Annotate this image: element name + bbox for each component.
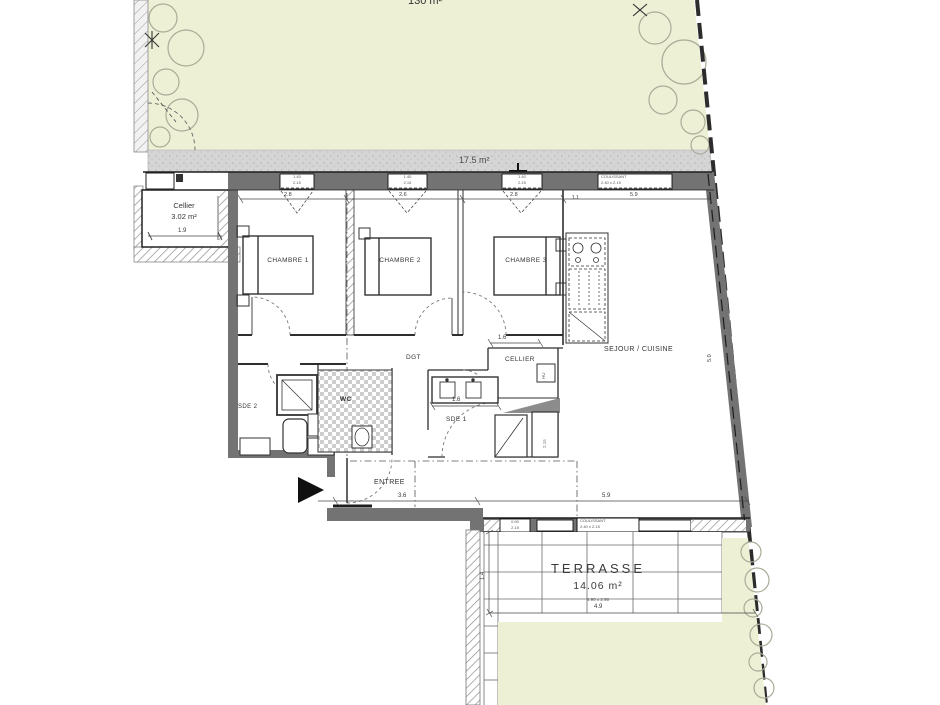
dim-top-3: 2.8 — [510, 192, 518, 198]
bed-chambre1 — [237, 226, 313, 306]
room-label-chambre-1: CHAMBRE 1 — [252, 257, 324, 264]
dim-top-1: 2.8 — [284, 192, 292, 198]
window-tag-3-line1: 1.40 — [503, 175, 541, 180]
terrace-window-tag-2-line2: 2.40 x 2.15 — [580, 525, 600, 530]
window-tag-2-line2: 2.15 — [389, 181, 426, 186]
terrace-window-tag-2-line1: COULISSANT — [580, 519, 606, 524]
room-label-sejour: SEJOUR / CUISINE — [604, 346, 673, 354]
room-label-chambre-3: CHAMBRE 3 — [490, 257, 562, 264]
dim-sejour-bottom: 5.9 — [600, 493, 612, 500]
kitchen-units — [566, 233, 608, 343]
dim-terrasse-height: 1.4 — [480, 572, 487, 580]
window-tag-2-line1: 1.40 — [389, 175, 426, 180]
dim-cellier-width: 1.9 — [178, 228, 186, 235]
dim-entry: 3.6 — [396, 493, 408, 500]
tag-water-heater: HU — [541, 373, 546, 380]
terrace-window-tag-1-line2: 2.15 — [501, 526, 529, 531]
reference-lines — [347, 193, 577, 517]
label-cellier-ext-area: 3.02 m² — [160, 213, 208, 222]
dim-right-wall: 5.0 — [707, 354, 713, 362]
terrace-window-tag-1-line1: 0.90 — [501, 520, 529, 525]
dim-vanity: 1.6 — [452, 397, 460, 404]
room-label-sde1: SDE 1 — [446, 416, 467, 423]
label-terrasse-area: 14.06 m² — [538, 580, 658, 592]
top-window-dashes — [281, 188, 671, 213]
label-garden-area: 130 m² — [408, 0, 442, 8]
dim-terrasse-width: 4.9 — [592, 604, 604, 611]
room-label-sde2: SDE 2 — [238, 404, 257, 411]
dim-top-4: 5.9 — [630, 192, 638, 198]
label-path-area: 17.5 m² — [459, 155, 490, 165]
exterior-walls — [228, 172, 752, 532]
label-terrasse-name: TERRASSE — [538, 562, 658, 577]
label-cellier-ext-name: Cellier — [160, 202, 208, 211]
tag-porte-fenetre: 2.15 — [542, 439, 547, 448]
label-terrasse-note: 4.90 x 2.90 — [538, 597, 658, 602]
wc-room — [318, 370, 392, 452]
dim-cellier-int: 1.6 — [498, 335, 506, 342]
dim-top-5: 1.1 — [572, 196, 579, 202]
floor-plan-drawing — [0, 0, 940, 705]
dim-top-2: 2.6 — [399, 192, 407, 198]
floor-plan: 130 m² 17.5 m² Cellier 3.02 m² 1.9 CHAMB… — [0, 0, 940, 705]
room-label-dgt: DGT — [406, 354, 421, 361]
window-tag-1-line2: 2.15 — [281, 181, 313, 186]
window-tag-3-line2: 2.15 — [503, 181, 541, 186]
window-tag-4-line1: COULISSANT — [601, 175, 627, 180]
entrance-arrow — [298, 477, 324, 503]
garden-area — [134, 0, 712, 172]
room-label-entree: ENTREE — [374, 479, 405, 487]
window-tag-1-line1: 1.40 — [281, 175, 313, 180]
room-label-chambre-2: CHAMBRE 2 — [364, 257, 436, 264]
room-label-wc: WC — [340, 396, 352, 403]
window-tag-4-line2: 2.40 x 2.15 — [601, 181, 621, 186]
bed-chambre3 — [494, 237, 567, 295]
room-label-cellier-int: CELLIER — [505, 356, 535, 363]
